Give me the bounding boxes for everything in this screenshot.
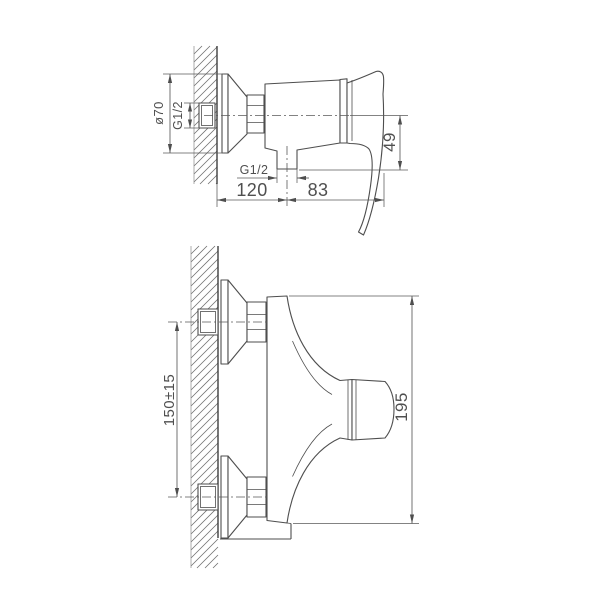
front-view: 150±15 195 <box>161 246 419 568</box>
arrow-right <box>375 198 384 202</box>
handle-knob-front <box>352 380 394 441</box>
arrow-up <box>175 322 179 331</box>
arrow-down <box>188 120 192 129</box>
shower-mixer-dimension-drawing: ø70 G1/2 49 G1/2 <box>0 0 600 600</box>
valve-body-side <box>265 79 347 169</box>
dim-label-inlet-thread: G1/2 <box>171 101 185 130</box>
dim-label-inlet-centers: 150±15 <box>161 374 178 426</box>
wall-hatch-bottom <box>191 246 218 568</box>
wall-section-bottom <box>191 246 218 568</box>
arrow-down <box>175 488 179 497</box>
technical-drawing-page: ø70 G1/2 49 G1/2 <box>0 0 600 600</box>
hex-nut-side <box>247 95 264 133</box>
arrow-up <box>188 103 192 112</box>
dim-label-escutcheon-diameter: ø70 <box>151 101 166 125</box>
arrow-down <box>410 515 414 524</box>
side-view: ø70 G1/2 49 G1/2 <box>151 46 408 235</box>
handle-collar-side <box>340 79 347 143</box>
dim-label-wall-to-outlet: 120 <box>236 180 267 200</box>
dim-label-outlet-thread: G1/2 <box>240 163 269 177</box>
body-base-join <box>287 523 291 524</box>
arrow-up <box>398 116 402 125</box>
arrow-left <box>217 198 226 202</box>
escutcheon-side <box>222 74 247 153</box>
dim-inlet-thread: G1/2 <box>171 101 200 130</box>
arrow-down <box>398 161 402 170</box>
lever-handle-side <box>347 71 384 235</box>
arrow-right <box>268 176 277 180</box>
dim-label-outlet-to-handle: 83 <box>308 180 329 200</box>
dim-label-overall-height: 195 <box>392 392 411 422</box>
dim-inlet-centers: 150±15 <box>161 322 179 497</box>
arrow-down <box>168 144 172 153</box>
arrow-up <box>410 296 414 305</box>
arrow-left <box>287 198 296 202</box>
arrow-right <box>278 198 287 202</box>
arrow-up <box>168 74 172 83</box>
dim-label-outlet-drop: 49 <box>380 132 399 152</box>
arrow-left <box>297 176 306 180</box>
